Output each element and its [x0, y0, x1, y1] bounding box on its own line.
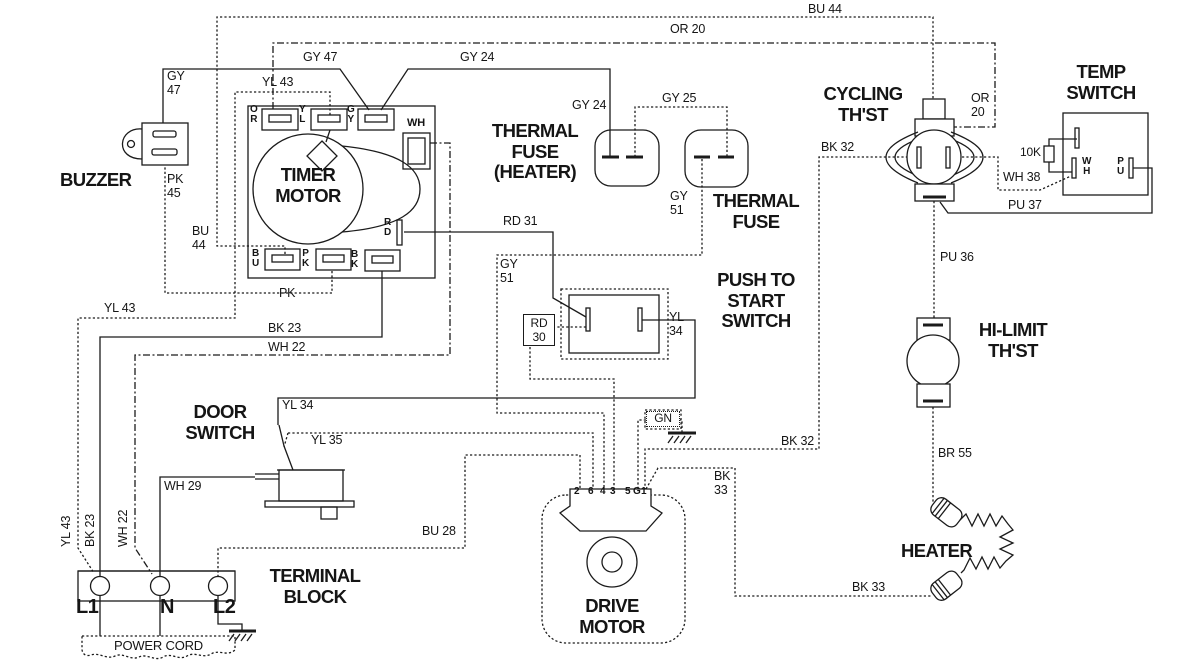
hi-limit-shape	[907, 318, 959, 407]
cycling-thst-label: CYCLING TH'ST	[808, 84, 918, 125]
temp-terminal-wh: W H	[1082, 157, 1091, 176]
heater-label: HEATER	[901, 541, 972, 562]
wire-rd31	[404, 232, 586, 317]
gn-ground-symbol	[668, 433, 696, 443]
wire-label-pu36: PU 36	[940, 251, 974, 265]
wire-label-yl34-door: YL 34	[282, 399, 313, 413]
temp-terminal-pu: P U	[1117, 157, 1124, 176]
wire-label-bk33-heater: BK 33	[852, 581, 885, 595]
wire-label-wh29: WH 29	[164, 480, 201, 494]
wire-label-gy47-side: GY 47	[167, 70, 185, 97]
wire-label-bk23-mid: BK 23	[268, 322, 301, 336]
wire-label-gy51-switch: GY 51	[500, 258, 518, 285]
door-switch-actuator	[279, 425, 293, 470]
motor-pin-3: 3	[610, 487, 615, 497]
thermal-fuse-heater-label: THERMAL FUSE (HEATER)	[470, 121, 600, 183]
wire-label-yl35: YL 35	[311, 434, 342, 448]
wire-bk33	[646, 468, 932, 596]
terminal-block-label: TERMINAL BLOCK	[256, 566, 374, 607]
wire-label-bu28: BU 28	[422, 525, 456, 539]
wire-label-br55: BR 55	[938, 447, 972, 461]
wire-label-bu44-top: BU 44	[808, 3, 842, 17]
wire-label-yl34-switch: YL 34	[669, 311, 684, 338]
wire-label-rd30: RD 30	[523, 314, 555, 346]
wire-label-yl43-vert: YL 43	[60, 516, 74, 547]
motor-pin-1: 1	[641, 487, 646, 497]
push-to-start-label: PUSH TO START SWITCH	[694, 270, 818, 332]
wire-label-gy47-top: GY 47	[303, 51, 337, 65]
wire-label-pk45: PK 45	[167, 173, 183, 200]
wire-wh22	[135, 143, 450, 574]
wire-label-bk32-top: BK 32	[821, 141, 854, 155]
timer-terminal-or: O R	[250, 105, 258, 124]
block-terminal-n: N	[160, 601, 174, 615]
temp-switch-label: TEMP SWITCH	[1046, 62, 1156, 103]
wire-label-wh22-vert: WH 22	[117, 510, 131, 547]
thermal-fuse-shape	[685, 130, 748, 187]
timer-terminal-wh: WH	[403, 119, 429, 129]
wire-bu28	[218, 455, 580, 577]
block-terminal-l1: L1	[76, 601, 98, 615]
motor-pin-g: G	[633, 487, 641, 497]
timer-terminal-bk: B K	[351, 250, 358, 269]
hi-limit-label: HI-LIMIT TH'ST	[963, 320, 1063, 361]
wire-label-gy51-fuse: GY 51	[670, 190, 688, 217]
motor-pin-6: 6	[588, 487, 593, 497]
wire-label-or20-top: OR 20	[670, 23, 705, 37]
timer-terminal-pk: P K	[302, 249, 309, 268]
wire-gy25	[635, 107, 727, 157]
timer-terminal-rd: R D	[384, 218, 391, 237]
wire-label-gy25: GY 25	[662, 92, 696, 106]
timer-terminal-gy: G Y	[347, 105, 355, 124]
wire-label-rd31: RD 31	[503, 215, 537, 229]
wire-rd30b	[530, 347, 614, 489]
wire-label-pk: PK	[279, 287, 295, 301]
wire-yl34	[278, 320, 695, 425]
motor-pin-2: 2	[574, 487, 579, 497]
wire-label-or20-side: OR 20	[971, 92, 989, 119]
wire-label-bk33-motor: BK 33	[714, 470, 730, 497]
motor-pin-5: 5	[625, 487, 630, 497]
timer-motor-label: TIMER MOTOR	[253, 165, 363, 206]
thermal-fuse-heater-shape	[595, 130, 659, 186]
timer-terminal-yl: Y L	[299, 105, 305, 124]
buzzer-shape	[122, 123, 188, 165]
wire-label-wh38: WH 38	[1003, 171, 1040, 185]
wire-label-pu37: PU 37	[1008, 199, 1042, 213]
wire-yl35-leader	[284, 433, 288, 447]
drive-motor-label: DRIVE MOTOR	[562, 596, 662, 637]
block-terminal-l2: L2	[213, 601, 235, 615]
timer-terminal-bu: B U	[252, 249, 259, 268]
push-to-start-shape	[561, 289, 668, 359]
gn-label: GN	[646, 411, 680, 427]
wire-label-gy24-mid: GY 24	[572, 99, 606, 113]
power-cord-label: POWER CORD	[96, 639, 221, 653]
wire-label-bu44-side: BU 44	[192, 225, 209, 252]
buzzer-label: BUZZER	[60, 170, 131, 191]
wire-label-wh22-mid: WH 22	[268, 341, 305, 355]
door-switch-label: DOOR SWITCH	[170, 402, 270, 443]
wire-label-bk23-vert: BK 23	[84, 514, 98, 547]
wire-label-yl43-top: YL 43	[262, 76, 293, 90]
temp-switch-shape	[1044, 113, 1148, 195]
thermal-fuse-label: THERMAL FUSE	[700, 191, 812, 232]
motor-pin-4: 4	[600, 487, 605, 497]
wire-label-bk32-bottom: BK 32	[781, 435, 814, 449]
wire-label-gy24-top: GY 24	[460, 51, 494, 65]
wire-label-yl43-mid: YL 43	[104, 302, 135, 316]
resistor-10k-label: 10K	[1020, 146, 1041, 160]
wiring-diagram: BUZZER TIMER MOTOR THERMAL FUSE (HEATER)…	[0, 0, 1200, 668]
